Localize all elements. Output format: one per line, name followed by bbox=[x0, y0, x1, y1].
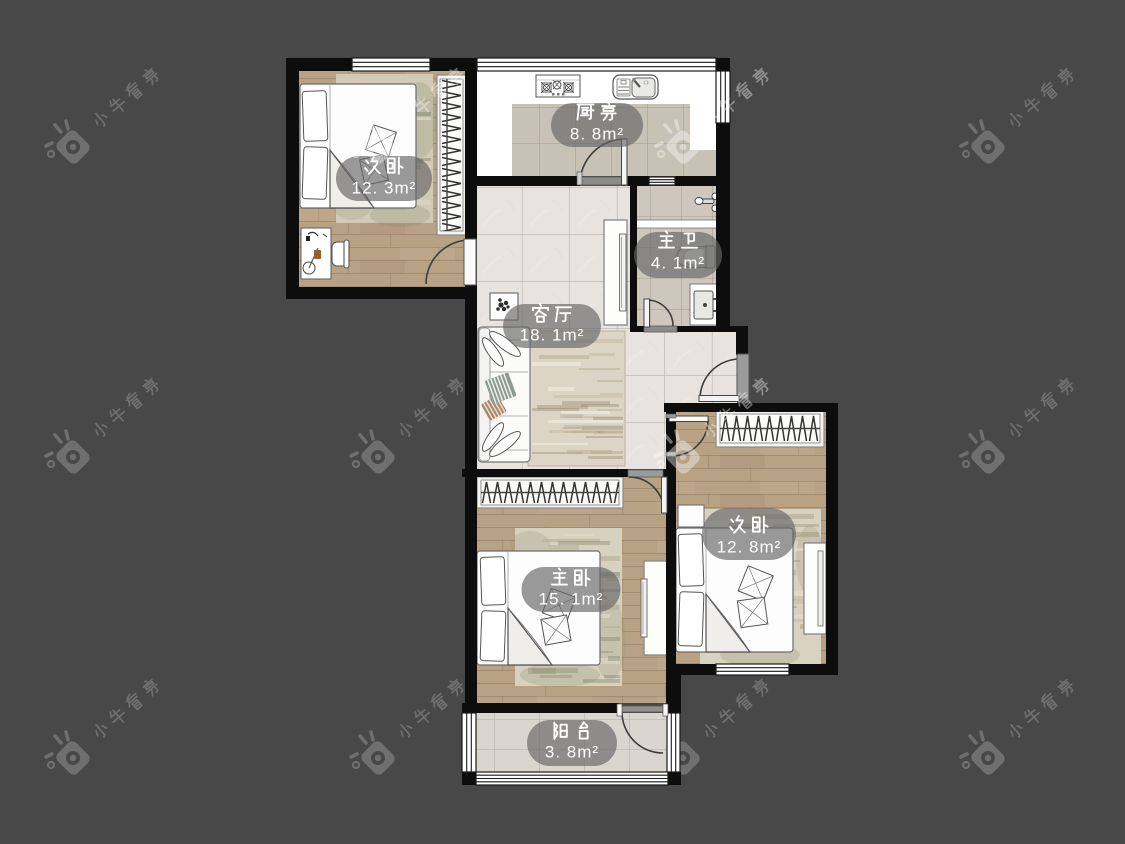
svg-text:12. 3m²: 12. 3m² bbox=[352, 179, 417, 198]
svg-text:18. 1m²: 18. 1m² bbox=[520, 326, 585, 345]
svg-text:4. 1m²: 4. 1m² bbox=[651, 254, 705, 273]
svg-text:12. 8m²: 12. 8m² bbox=[717, 538, 782, 557]
svg-text:8. 8m²: 8. 8m² bbox=[570, 125, 624, 144]
svg-text:3. 8m²: 3. 8m² bbox=[545, 743, 599, 762]
svg-text:15. 1m²: 15. 1m² bbox=[539, 590, 604, 609]
